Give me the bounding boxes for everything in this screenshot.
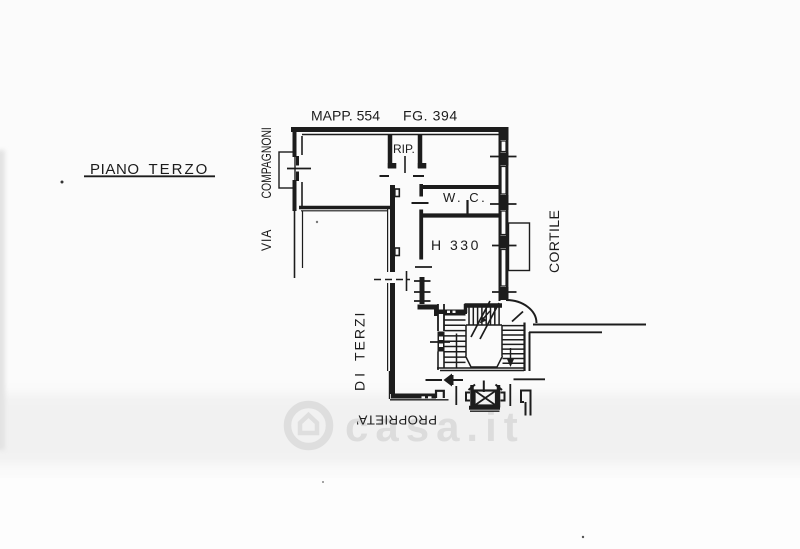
svg-text:TERZI: TERZI: [352, 311, 368, 361]
svg-text:W. C.: W. C.: [443, 190, 487, 205]
svg-text:FG. 394: FG. 394: [403, 108, 458, 124]
svg-text:RIP.: RIP.: [393, 142, 415, 156]
svg-text:VIA: VIA: [258, 229, 274, 251]
svg-text:MAPP. 554: MAPP. 554: [311, 108, 380, 124]
svg-text:PROPRIETA’: PROPRIETA’: [356, 413, 437, 428]
svg-text:CORTILE: CORTILE: [546, 210, 562, 273]
svg-text:H 330: H 330: [431, 237, 481, 253]
svg-text:DI: DI: [352, 369, 368, 391]
svg-text:COMPAGNONI: COMPAGNONI: [259, 127, 275, 198]
